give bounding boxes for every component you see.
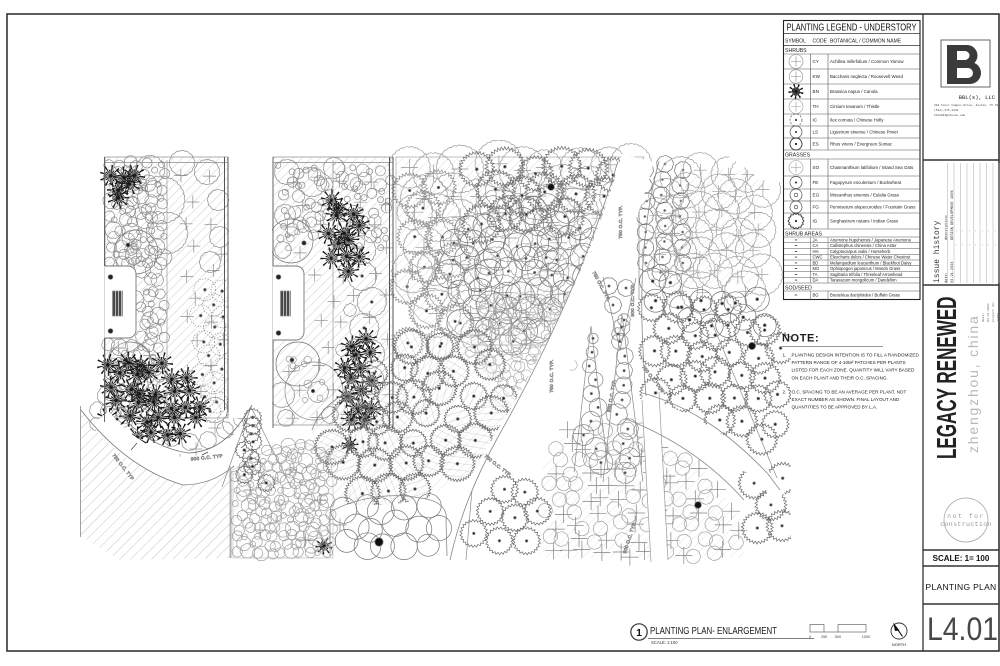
svg-text:zhengzhou, china: zhengzhou, china [965,314,981,453]
svg-text:-: - [988,230,992,232]
svg-text:1.: 1. [783,353,787,358]
svg-text:Taraxacum mongolicum / Dandeli: Taraxacum mongolicum / Dandelion [830,278,897,283]
svg-text:BG: BG [813,293,819,298]
svg-text:Pennisetum alopecuroides / Fou: Pennisetum alopecuroides / Fountain Gras… [830,205,916,210]
svg-text:LEGACY RENEWED: LEGACY RENEWED [931,297,962,459]
svg-text:BN: BN [813,89,819,94]
svg-text:Miscanthus sinensis / Eulalia: Miscanthus sinensis / Eulalia Grass [830,193,900,198]
svg-text:Achillea millefolium / Common: Achillea millefolium / Common Yarrow [830,59,904,64]
svg-text:-: - [962,244,966,246]
svg-text:-: - [994,230,998,232]
svg-text:JA: JA [813,238,818,243]
svg-text:date:: date: [981,313,985,322]
svg-text:Ilex cornuta / Chinese Holly: Ilex cornuta / Chinese Holly [830,118,884,123]
svg-text:issue history: issue history [933,220,942,283]
svg-text:Ligustrum sinense / Chinese Pr: Ligustrum sinense / Chinese Privet [830,130,899,135]
svg-text:CY: CY [813,59,819,64]
svg-text:Bouteloua dactyloides / Buffal: Bouteloua dactyloides / Buffalo Grass [830,293,900,298]
svg-text:24001: 24001 [996,313,1000,322]
svg-text:Chasmanthium latifolium / Inla: Chasmanthium latifolium / Inland Sea Oat… [830,165,914,170]
svg-text:O.C. SPACING TO BE AN AVERAGE: O.C. SPACING TO BE AN AVERAGE PER PLANT,… [792,390,907,395]
svg-text:CWC: CWC [813,255,823,260]
svg-text:project no:: project no: [991,301,995,322]
svg-text:not for: not for [947,513,985,520]
svg-text:1: 1 [636,627,642,639]
svg-text:BOTANICAL / COMMON NAME: BOTANICAL / COMMON NAME [830,39,902,45]
svg-text:DA: DA [813,278,819,283]
svg-text:04.21.2024: 04.21.2024 [951,261,955,283]
svg-text:EXACT NUMBER AS SHOWN. FINAL L: EXACT NUMBER AS SHOWN. FINAL LAYOUT AND [792,397,900,402]
svg-text:description:: description: [944,214,949,240]
svg-text:Eleocharis dulcis / Chinese Wa: Eleocharis dulcis / Chinese Water Chestn… [830,255,911,260]
svg-text:1000: 1000 [862,635,870,639]
svg-text:construction: construction [940,521,992,528]
svg-text:-: - [968,244,972,246]
svg-text:Sorghastrum nutans / Indian Gr: Sorghastrum nutans / Indian Grass [830,219,899,224]
svg-text:Cirsium texanum / Thistle: Cirsium texanum / Thistle [830,104,880,109]
svg-text:Rhus virens / Evergreen Sumac: Rhus virens / Evergreen Sumac [830,142,893,147]
svg-text:EG: EG [813,193,820,198]
svg-text:Callistephus chinensis / China: Callistephus chinensis / China Aster [830,243,897,248]
svg-text:PATTERN RANGE OF 4-10M² PATCHE: PATTERN RANGE OF 4-10M² PATCHES PER PLAN… [792,360,906,365]
svg-text:KW: KW [813,74,821,79]
svg-text:LISTED FOR EACH ZONE. QUANTITY: LISTED FOR EACH ZONE. QUANTITY WILL VARY… [792,368,915,373]
svg-text:ES: ES [813,142,819,147]
svg-text:NORTH: NORTH [892,642,906,647]
svg-text:SCALE: 1:100: SCALE: 1:100 [651,640,678,645]
svg-text:Brassica napus / Canola: Brassica napus / Canola [830,89,878,94]
svg-text:QUANTITIES TO BE APPROVED BY L: QUANTITIES TO BE APPROVED BY L.A. [792,405,878,410]
svg-text:ON EACH PLANT AND THEIR O.C. S: ON EACH PLANT AND THEIR O.C. SPACING. [792,375,888,380]
svg-text:0: 0 [809,635,811,639]
svg-text:04.21.2024: 04.21.2024 [986,303,990,322]
svg-text:-: - [981,244,985,246]
svg-text:-: - [975,244,979,246]
svg-text:Sagittaria trifolia / Threelea: Sagittaria trifolia / Threeleaf Arrowhea… [830,272,903,277]
svg-text:2.: 2. [783,390,787,395]
svg-text:BBL(s), LLC: BBL(s), LLC [959,94,996,101]
svg-text:BD: BD [813,261,819,266]
svg-text:PLANTING PLAN- ENLARGEMENT: PLANTING PLAN- ENLARGEMENT [650,625,777,637]
svg-text:FE: FE [813,180,819,185]
svg-text:-: - [955,244,959,246]
svg-text:LS: LS [813,130,819,135]
svg-text:SHRUB AREAS: SHRUB AREAS [785,231,822,237]
svg-text:-: - [975,230,979,232]
svg-text:SHRUBS: SHRUBS [785,48,807,54]
svg-text:TH: TH [813,104,819,109]
svg-text:-: - [994,244,998,246]
svg-text:HH: HH [813,249,819,254]
svg-text:(512)-471-1234: (512)-471-1234 [934,108,959,112]
svg-text:-: - [955,230,959,232]
svg-text:750 O.C. TYP.: 750 O.C. TYP. [549,359,554,392]
svg-text:IC: IC [813,118,818,123]
svg-text:Ophiopogon japonicus / Mondo G: Ophiopogon japonicus / Mondo Grass [830,266,900,271]
svg-text:500: 500 [835,635,841,639]
svg-text:Calyptocarpus vialis / Horsehe: Calyptocarpus vialis / Horseherb [830,249,891,254]
svg-text:750 O.C. TYP.: 750 O.C. TYP. [618,205,623,238]
svg-text:Melampodium leucanthum / Black: Melampodium leucanthum / Blackfoot Daisy [830,261,912,266]
svg-text:NOTE:: NOTE: [782,333,819,345]
svg-text:-: - [968,230,972,232]
svg-text:L4.01: L4.01 [927,611,998,647]
svg-text:SYMBOL: SYMBOL [785,39,806,45]
svg-text:-: - [962,230,966,232]
svg-text:Fagopyrum esculentum / Buckwhe: Fagopyrum esculentum / Buckwheat [830,180,902,185]
svg-text:CA: CA [813,243,819,248]
svg-text:FG: FG [813,205,820,210]
svg-text:SO: SO [813,165,820,170]
svg-text:TA: TA [813,272,818,277]
svg-text:-: - [981,230,985,232]
svg-text:SCALE: 1= 100: SCALE: 1= 100 [933,554,990,563]
svg-text:bbl2024@utexas.edu: bbl2024@utexas.edu [934,113,965,117]
svg-text:GRASSES: GRASSES [785,153,811,159]
svg-text:310 Inner Campus Drive, Austin: 310 Inner Campus Drive, Austin, TX 78712 [934,103,1000,107]
svg-text:PLANTING PLAN: PLANTING PLAN [926,582,997,592]
svg-text:CODE: CODE [813,39,828,45]
svg-text:date:: date: [944,272,949,283]
svg-text:Baccharis neglecta / Roosevelt: Baccharis neglecta / Roosevelt Weed [830,74,903,79]
svg-text:PLANTING LEGEND - UNDERSTORY: PLANTING LEGEND - UNDERSTORY [787,23,917,34]
svg-text:250: 250 [821,635,827,639]
svg-text:900 O.C. TYP.: 900 O.C. TYP. [630,283,635,316]
svg-text:-: - [988,244,992,246]
svg-text:IG: IG [813,219,818,224]
svg-text:PLANTING DESIGN INTENTION IS T: PLANTING DESIGN INTENTION IS TO FILL A R… [792,353,920,358]
svg-text:Anemone hupehensis / Japanese: Anemone hupehensis / Japanese Anemone [830,238,912,243]
svg-text:MG: MG [813,266,820,271]
svg-text:SOD/SEED: SOD/SEED [785,285,812,291]
